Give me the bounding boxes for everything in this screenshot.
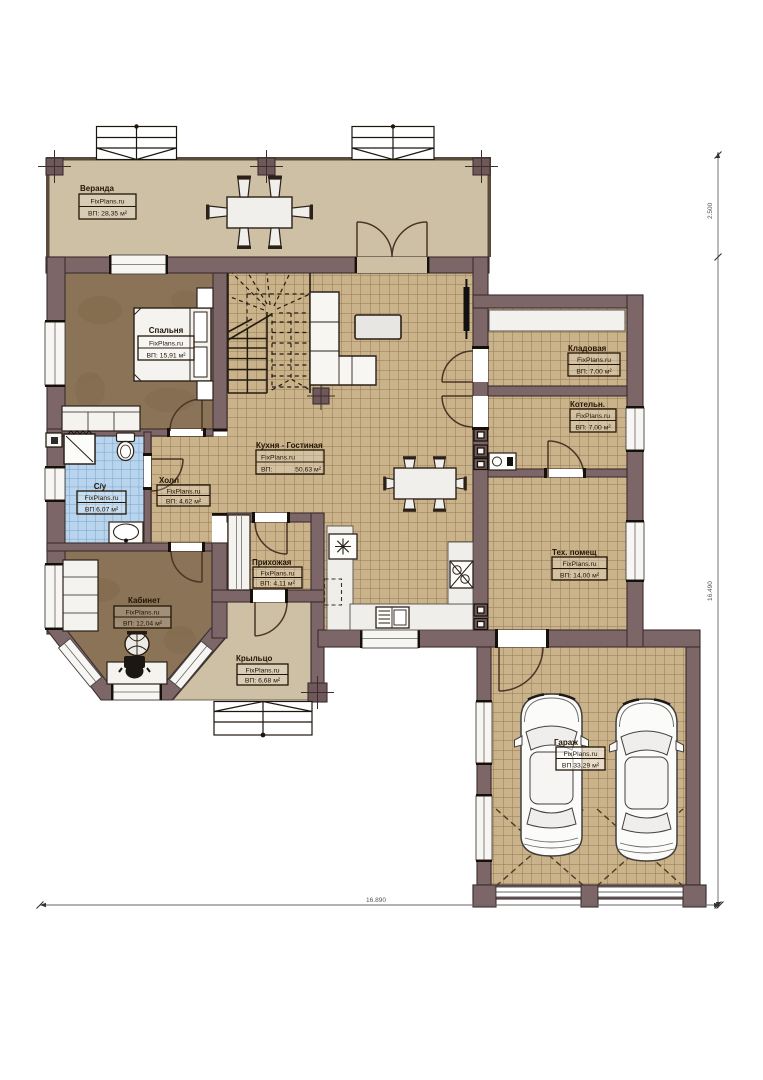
svg-text:FixPlans.ru: FixPlans.ru	[261, 455, 295, 462]
svg-text:50,63 м²: 50,63 м²	[295, 467, 322, 474]
svg-text:С/у: С/у	[94, 482, 107, 491]
svg-text:ВП: 15,91 м²: ВП: 15,91 м²	[146, 353, 186, 360]
svg-text:ВП: 7,00 м²: ВП: 7,00 м²	[575, 425, 611, 432]
svg-text:FixPlans.ru: FixPlans.ru	[167, 489, 201, 496]
svg-text:ВП: 4,11 м²: ВП: 4,11 м²	[260, 581, 295, 588]
svg-text:Веранда: Веранда	[80, 184, 114, 193]
svg-text:ВП: 4,62 м²: ВП: 4,62 м²	[166, 499, 202, 506]
svg-text:FixPlans.ru: FixPlans.ru	[91, 199, 125, 206]
svg-text:Кабинет: Кабинет	[128, 596, 160, 605]
svg-text:Котельн.: Котельн.	[570, 400, 605, 409]
svg-text:FixPlans.ru: FixPlans.ru	[261, 571, 295, 578]
svg-text:Холл: Холл	[159, 476, 179, 485]
svg-text:16.890: 16.890	[366, 897, 386, 904]
svg-text:ВП: 7,00 м²: ВП: 7,00 м²	[576, 369, 612, 376]
svg-text:Спальня: Спальня	[149, 326, 184, 335]
svg-text:FixPlans.ru: FixPlans.ru	[564, 751, 598, 758]
svg-text:ВП: 6,68 м²: ВП: 6,68 м²	[245, 678, 281, 685]
svg-text:Крыльцо: Крыльцо	[236, 654, 273, 663]
svg-text:FixPlans.ru: FixPlans.ru	[126, 610, 160, 617]
svg-text:FixPlans.ru: FixPlans.ru	[149, 341, 183, 348]
svg-text:ВП 33,29 м²: ВП 33,29 м²	[562, 763, 600, 770]
svg-text:FixPlans.ru: FixPlans.ru	[577, 357, 611, 364]
svg-text:FixPlans.ru: FixPlans.ru	[576, 413, 610, 420]
svg-text:Кухня - Гостиная: Кухня - Гостиная	[256, 441, 323, 450]
svg-text:ВП: 28,35 м²: ВП: 28,35 м²	[88, 211, 128, 218]
svg-text:FixPlans.ru: FixPlans.ru	[85, 495, 119, 502]
svg-text:16.490: 16.490	[707, 581, 714, 601]
svg-text:FixPlans.ru: FixPlans.ru	[246, 668, 280, 675]
svg-text:Кладовая: Кладовая	[568, 344, 607, 353]
svg-text:2.500: 2.500	[707, 202, 714, 219]
svg-text:Гараж: Гараж	[554, 738, 578, 747]
svg-text:FixPlans.ru: FixPlans.ru	[563, 561, 597, 568]
svg-text:Тех. помещ: Тех. помещ	[552, 548, 597, 557]
svg-text:ВП: 14,00 м²: ВП: 14,00 м²	[560, 573, 600, 580]
svg-text:Прихожая: Прихожая	[252, 558, 292, 567]
svg-text:ВП 6,07 м²: ВП 6,07 м²	[85, 507, 119, 514]
svg-text:ВП:: ВП:	[261, 467, 272, 474]
svg-text:ВП: 12,04 м²: ВП: 12,04 м²	[123, 621, 163, 628]
